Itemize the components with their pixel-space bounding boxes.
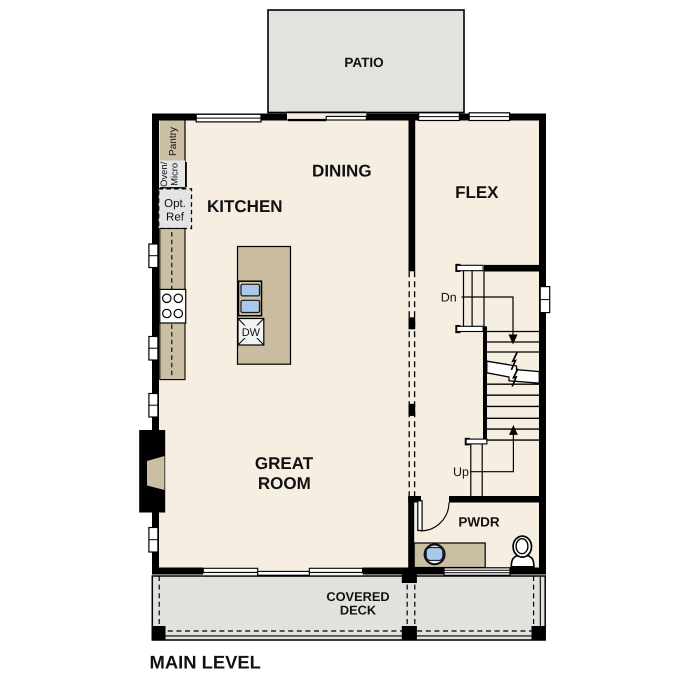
svg-text:Oven/: Oven/ xyxy=(158,161,169,186)
svg-text:DW: DW xyxy=(242,327,261,339)
svg-text:PATIO: PATIO xyxy=(344,55,383,70)
svg-text:PWDR: PWDR xyxy=(458,515,499,530)
svg-text:FLEX: FLEX xyxy=(455,183,499,202)
svg-text:KITCHEN: KITCHEN xyxy=(207,197,283,216)
svg-text:Micro: Micro xyxy=(169,163,180,186)
svg-text:Opt.: Opt. xyxy=(164,198,186,210)
svg-text:Pantry: Pantry xyxy=(168,127,179,156)
svg-text:ROOM: ROOM xyxy=(258,474,311,493)
svg-text:DECK: DECK xyxy=(340,603,377,618)
svg-text:Up: Up xyxy=(453,465,469,479)
svg-text:Dn: Dn xyxy=(441,290,457,304)
svg-text:GREAT: GREAT xyxy=(255,454,314,473)
svg-text:MAIN LEVEL: MAIN LEVEL xyxy=(150,651,261,672)
svg-text:DINING: DINING xyxy=(312,161,372,180)
svg-text:Ref: Ref xyxy=(166,212,185,224)
